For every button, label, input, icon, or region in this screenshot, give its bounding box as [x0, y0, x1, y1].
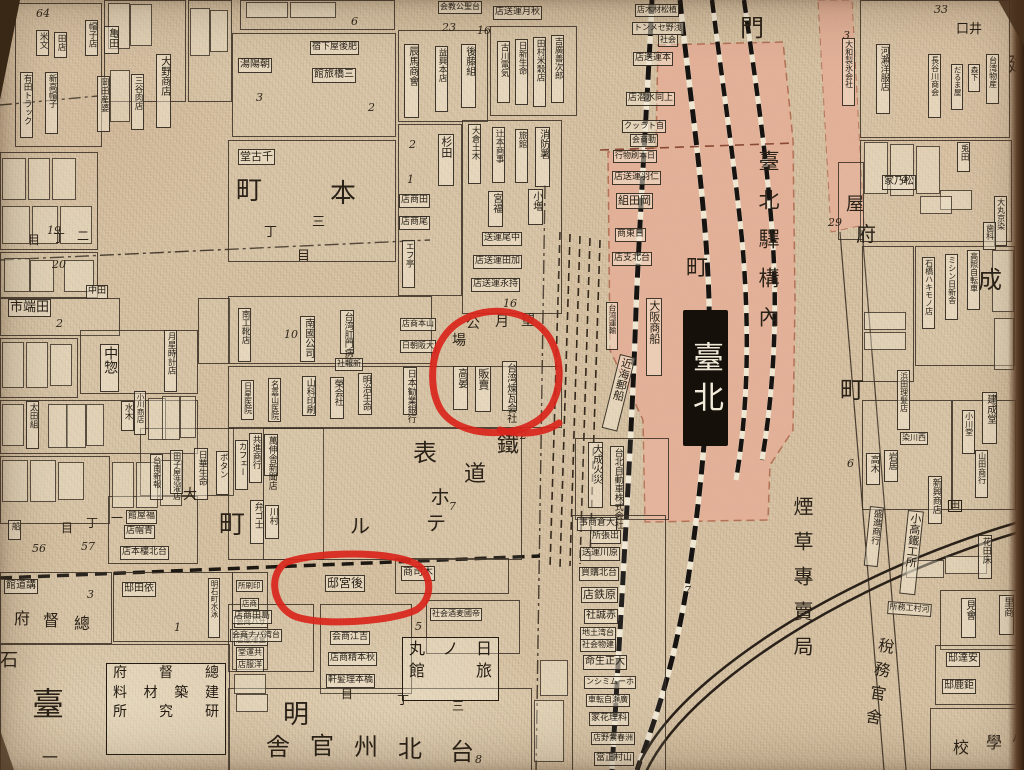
photo-frame-corner — [0, 730, 14, 770]
red-annotation-circle — [433, 311, 560, 432]
annotation-circles — [0, 0, 1024, 770]
red-annotation-circle — [275, 554, 429, 622]
photo-frame-edge — [1008, 0, 1024, 770]
photo-frame-corner — [998, 0, 1024, 46]
photo-frame-corner — [0, 0, 20, 100]
map-photo: 有田トラック新高帽子米文田店帽子店亀田大野商店三谷肉店岡田産婆湯陽朝宿下屋後肥館… — [0, 0, 1024, 770]
